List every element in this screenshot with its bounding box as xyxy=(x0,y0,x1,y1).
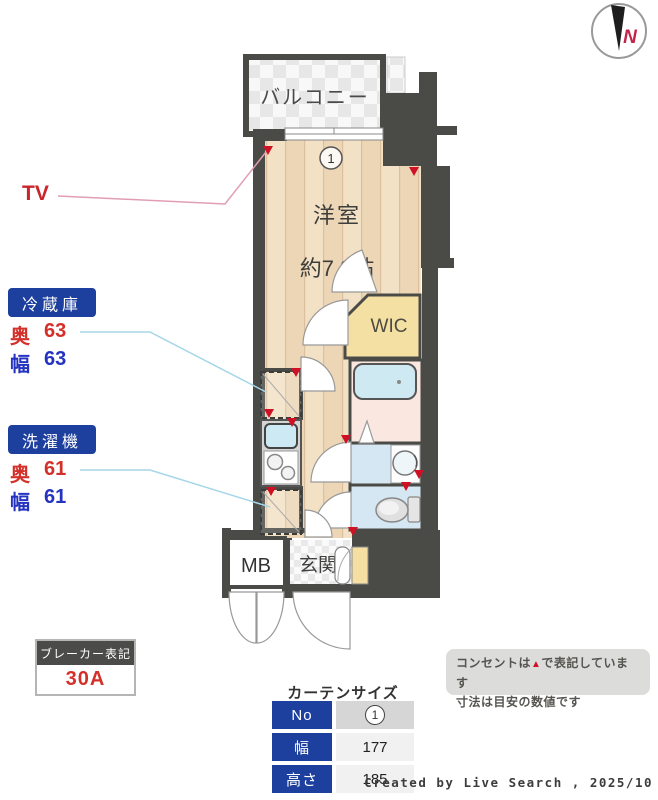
washer-width-label: 幅 xyxy=(10,486,44,515)
bathroom-area xyxy=(350,360,422,443)
shoe-cabinet xyxy=(352,547,368,584)
washer-depth-row: 奥 61 xyxy=(10,458,100,487)
svg-text:1: 1 xyxy=(327,151,334,166)
circled-number: 1 xyxy=(365,705,385,725)
breaker-value: 30A xyxy=(37,665,134,694)
fridge-depth-row: 奥 63 xyxy=(10,320,100,349)
legend-note-line1: コンセントは▲で表記しています xyxy=(456,654,640,693)
room-name-label: 洋室 xyxy=(313,203,361,228)
entrance-label: 玄関 xyxy=(299,554,337,576)
tv-label: TV xyxy=(22,182,49,206)
legend-note-line2: 寸法は目安の数値です xyxy=(456,693,640,712)
fridge-width-value: 63 xyxy=(44,348,88,377)
fridge-leader-line xyxy=(80,332,266,392)
balcony-label: バルコニー xyxy=(260,87,370,109)
fridge-depth-value: 63 xyxy=(44,320,88,349)
breaker-box: ブレーカー表記 30A xyxy=(35,639,136,696)
balcony-window xyxy=(285,128,383,140)
kitchen-sink xyxy=(265,424,297,448)
floorplan-page: バルコニー 1 洋室 約7.3帖 WIC xyxy=(0,0,658,800)
bathtub xyxy=(354,364,416,399)
entrance-door xyxy=(335,547,351,584)
credit-text: Created by Live Search , 2025/10 xyxy=(0,775,653,790)
fridge-width-label: 幅 xyxy=(10,348,44,377)
toilet-tank xyxy=(408,497,420,522)
meter-box-label: MB xyxy=(241,555,271,577)
washbasin xyxy=(393,451,417,475)
washroom-area xyxy=(350,443,422,485)
breaker-title: ブレーカー表記 xyxy=(37,641,134,665)
fridge-title-badge: 冷蔵庫 xyxy=(8,288,96,317)
washer-width-value: 61 xyxy=(44,486,88,515)
legend-note: コンセントは▲で表記しています 寸法は目安の数値です xyxy=(446,649,650,695)
washer-depth-label: 奥 xyxy=(10,458,44,487)
table-row: No 1 xyxy=(272,701,414,729)
curtain-table-title: カーテンサイズ xyxy=(272,682,414,703)
exterior-door-swings xyxy=(229,592,350,649)
compass-north-label: N xyxy=(623,27,638,48)
tv-leader-line xyxy=(58,152,266,204)
washer-depth-value: 61 xyxy=(44,458,88,487)
fridge-width-row: 幅 63 xyxy=(10,348,100,377)
wic-label: WIC xyxy=(371,316,408,337)
outlet-symbol-icon: ▲ xyxy=(531,659,541,670)
washer-title: 洗濯機 xyxy=(22,428,82,452)
kitchen-area xyxy=(261,420,301,486)
curtain-row-width-label: 幅 xyxy=(272,733,332,761)
compass: N xyxy=(592,4,646,58)
table-row: 幅 177 xyxy=(272,733,414,761)
toilet-area xyxy=(350,485,422,530)
fridge-depth-label: 奥 xyxy=(10,320,44,349)
washer-width-row: 幅 61 xyxy=(10,486,100,515)
curtain-row-no-value: 1 xyxy=(336,701,414,729)
washer-space xyxy=(261,490,301,534)
fridge-title: 冷蔵庫 xyxy=(22,291,82,315)
washer-title-badge: 洗濯機 xyxy=(8,425,96,454)
curtain-row-no-label: No xyxy=(272,701,332,729)
window-number-marker: 1 xyxy=(320,147,342,169)
neighbor-balcony-edge xyxy=(387,57,405,93)
curtain-row-width-value: 177 xyxy=(336,733,414,761)
washer-leader-line xyxy=(80,470,270,507)
